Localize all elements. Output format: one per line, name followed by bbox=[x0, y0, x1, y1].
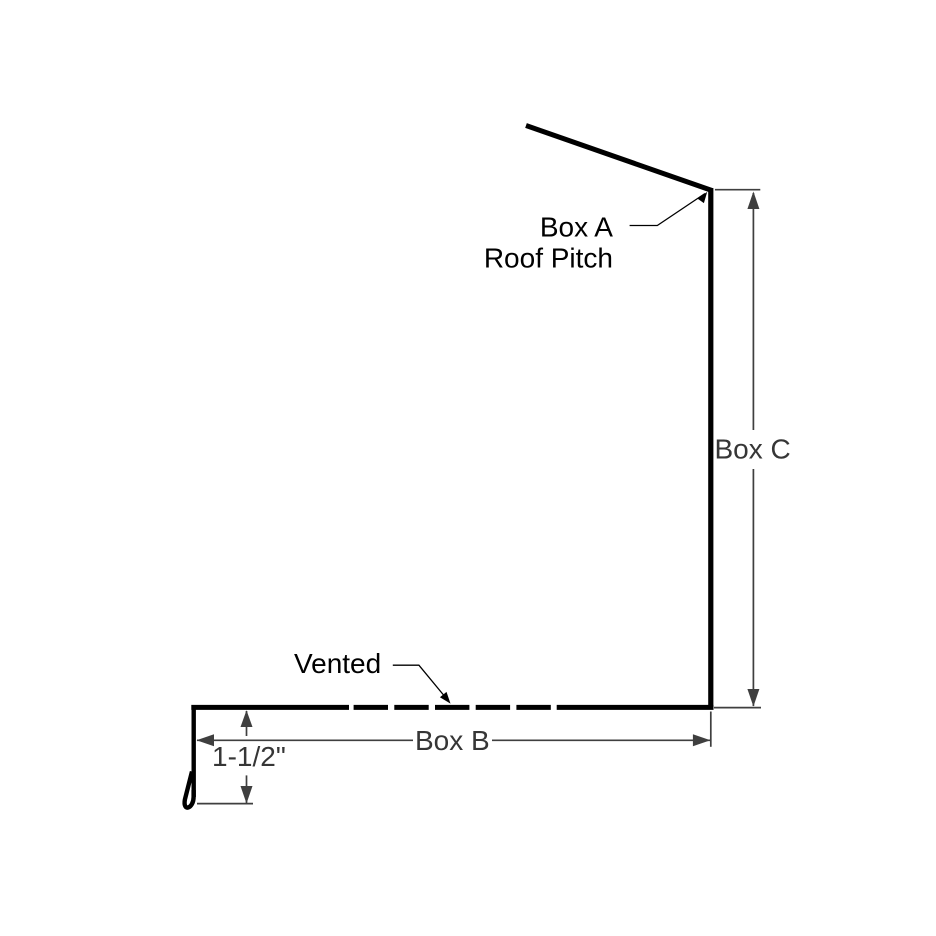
svg-text:Vented: Vented bbox=[294, 648, 381, 679]
svg-text:Box B: Box B bbox=[415, 725, 490, 756]
svg-text:Box C: Box C bbox=[715, 434, 791, 465]
svg-text:1-1/2": 1-1/2" bbox=[212, 741, 286, 772]
svg-text:Box A: Box A bbox=[540, 212, 613, 243]
svg-text:Roof Pitch: Roof Pitch bbox=[484, 243, 613, 274]
